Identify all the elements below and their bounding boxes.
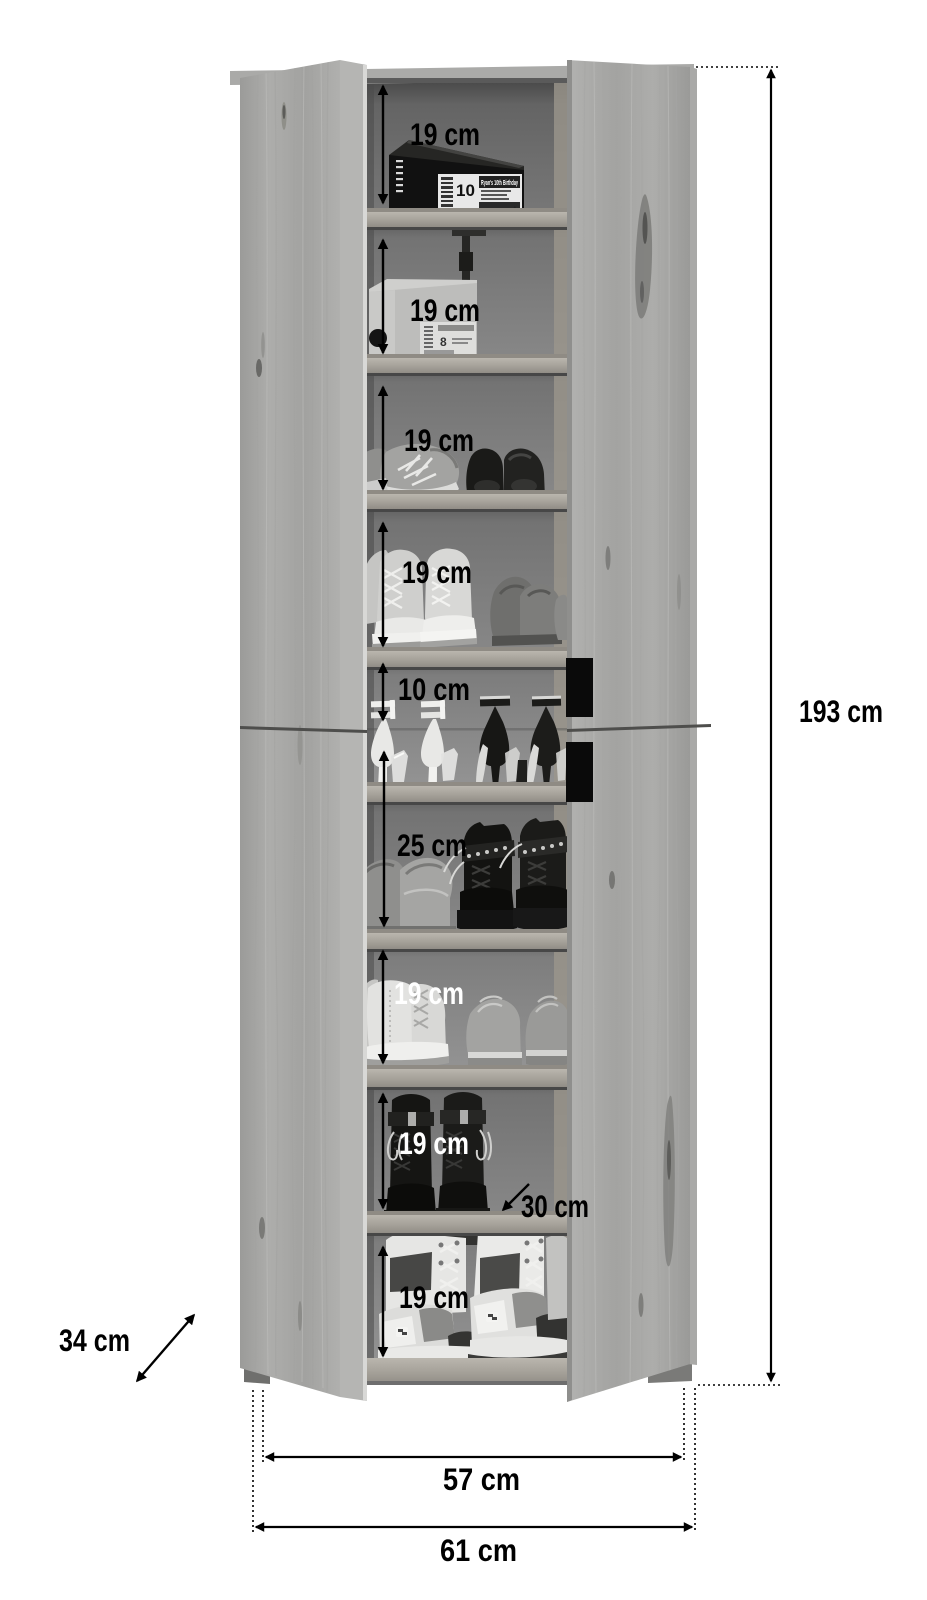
svg-text:10 cm: 10 cm: [398, 671, 470, 707]
svg-text:19 cm: 19 cm: [402, 554, 472, 590]
svg-text:19 cm: 19 cm: [410, 116, 480, 152]
svg-text:25 cm: 25 cm: [397, 827, 467, 863]
svg-text:193 cm: 193 cm: [799, 693, 883, 729]
svg-text:19 cm: 19 cm: [404, 422, 474, 458]
svg-text:34 cm: 34 cm: [59, 1322, 130, 1358]
svg-text:19 cm: 19 cm: [410, 292, 480, 328]
svg-text:61 cm: 61 cm: [440, 1532, 517, 1568]
svg-text:8: 8: [440, 335, 447, 349]
svg-text:30 cm: 30 cm: [521, 1188, 589, 1224]
svg-text:19 cm: 19 cm: [399, 1279, 469, 1315]
svg-text:19 cm: 19 cm: [394, 975, 464, 1011]
svg-text:Ryan's 10th Birthday: Ryan's 10th Birthday: [481, 180, 518, 187]
svg-text:57 cm: 57 cm: [443, 1461, 520, 1497]
svg-text:19 cm: 19 cm: [399, 1125, 469, 1161]
svg-text:10: 10: [456, 181, 475, 200]
